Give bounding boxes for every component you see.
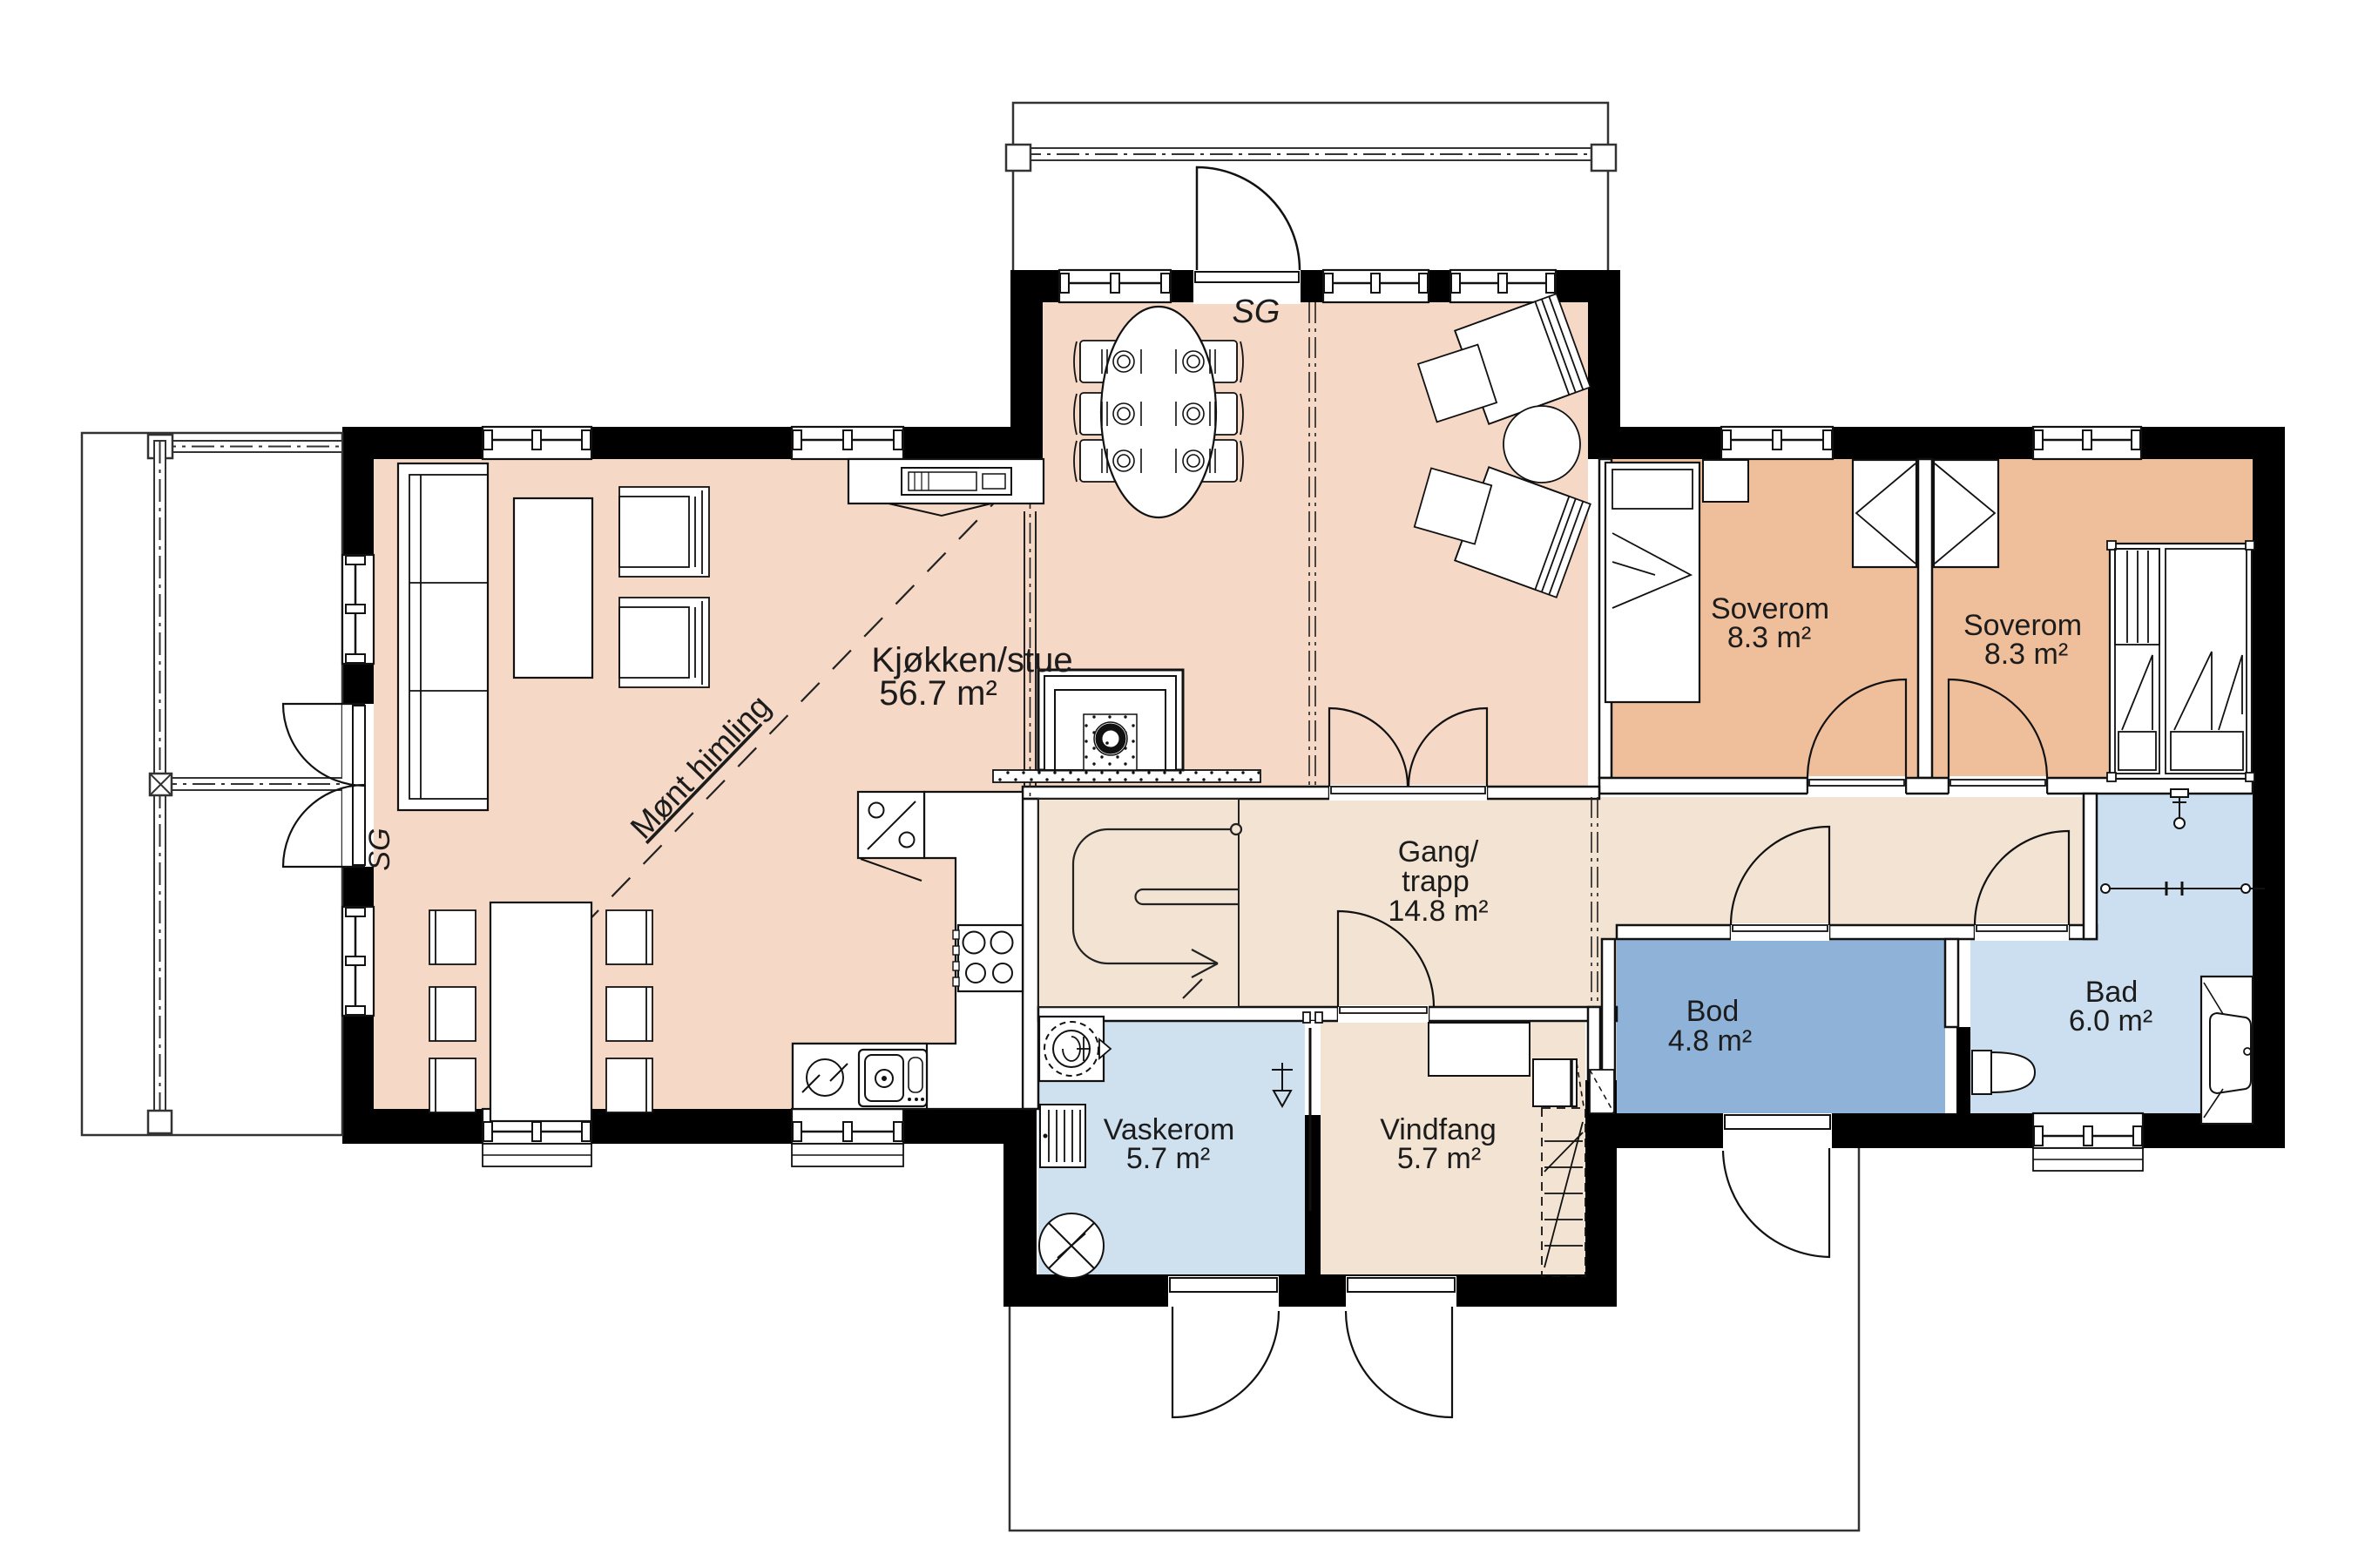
svg-text:4.8 m²: 4.8 m² — [1668, 1024, 1752, 1058]
svg-text:Gang/: Gang/ — [1398, 835, 1479, 868]
svg-text:5.7 m²: 5.7 m² — [1126, 1142, 1210, 1175]
svg-text:5.7 m²: 5.7 m² — [1397, 1142, 1481, 1175]
svg-text:trapp: trapp — [1402, 865, 1470, 898]
svg-text:56.7 m²: 56.7 m² — [879, 674, 997, 713]
svg-text:Bod: Bod — [1686, 995, 1740, 1028]
svg-text:14.8 m²: 14.8 m² — [1388, 895, 1488, 928]
svg-text:8.3 m²: 8.3 m² — [1984, 638, 2068, 671]
svg-text:8.3 m²: 8.3 m² — [1727, 621, 1811, 654]
svg-text:6.0 m²: 6.0 m² — [2069, 1004, 2152, 1037]
svg-text:SG: SG — [363, 828, 396, 870]
svg-text:SG: SG — [1233, 294, 1280, 330]
